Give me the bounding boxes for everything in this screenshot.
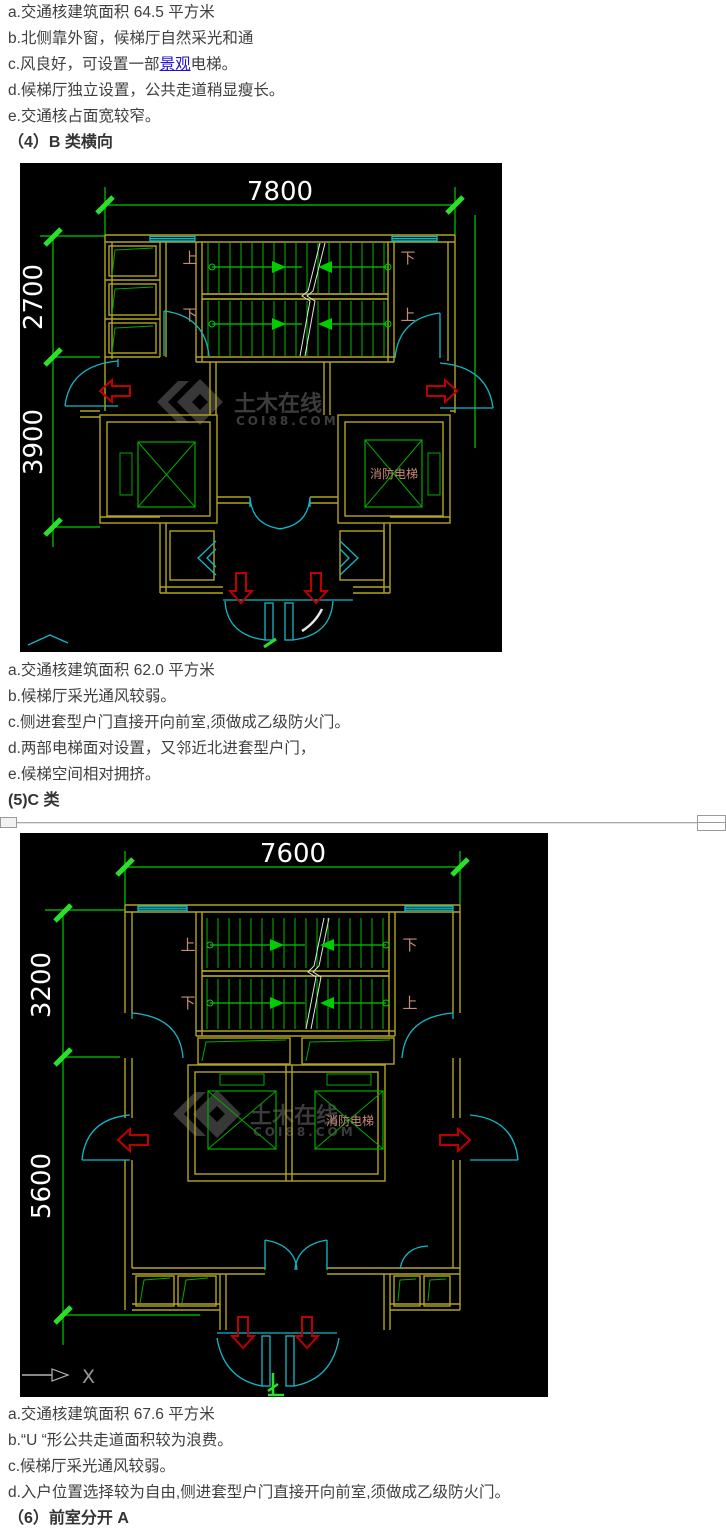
stair-label-down-right: 下 (400, 249, 415, 267)
resize-handle-right[interactable] (697, 815, 726, 831)
x-axis-indicator: X (22, 1366, 95, 1388)
stair-label-down-left: 下 (182, 306, 197, 324)
watermark-site-text: COI88.COM (236, 414, 339, 428)
document-page: a.交通核建筑面积 64.5 平方米 b.北侧靠外窗，候梯厅自然采光和通 c.风… (0, 0, 726, 1540)
dim-lower-label: 3900 (20, 409, 49, 475)
paragraph-d: d.两部电梯面对设置，又邻近北进套型户门， (8, 740, 708, 757)
paragraph-c-text: c.风良好，可设置一部 (8, 56, 160, 73)
duct-flaps (112, 248, 153, 353)
jingguan-link[interactable]: 景观 (160, 56, 191, 73)
paragraph-b: b.候梯厅采光通风较弱。 (8, 688, 708, 705)
paragraph-d: d.候梯厅独立设置，公共走道稍显瘦长。 (8, 82, 708, 99)
cad-figure-c-type[interactable]: 土木在线 COI88.COM 7600 3200 5600 (20, 833, 548, 1397)
paragraph-a: a.交通核建筑面积 67.6 平方米 (8, 1406, 708, 1423)
dim-lower-label: 5600 (27, 1153, 57, 1219)
dim-upper-label: 2700 (20, 264, 49, 330)
section-split-line (0, 822, 726, 823)
paragraph-d: d.入户位置选择较为自由,侧进套型户门直接开向前室,须做成乙级防火门。 (8, 1484, 708, 1501)
dimension-lines (45, 851, 460, 1345)
paragraph-block-1: a.交通核建筑面积 64.5 平方米 b.北侧靠外窗，候梯厅自然采光和通 c.风… (8, 4, 708, 160)
paragraph-b: b.“U “形公共走道面积较为浪费。 (8, 1432, 708, 1449)
fire-elevator-label: 消防电梯 (326, 1113, 374, 1128)
cad-drawing-b-type: 土木在线 COI88.COM 7800 2700 3900 (20, 163, 502, 652)
paragraph-a: a.交通核建筑面积 64.5 平方米 (8, 4, 708, 21)
elevator-left (120, 442, 195, 507)
paragraph-c-tail: 电梯。 (191, 56, 238, 73)
paragraph-block-2: a.交通核建筑面积 62.0 平方米 b.候梯厅采光通风较弱。 c.侧进套型户门… (8, 662, 708, 818)
watermark-logo: 土木在线 COI88.COM (157, 379, 339, 428)
cad-drawing-c-type: 土木在线 COI88.COM 7600 3200 5600 (20, 833, 548, 1397)
stair-direction-arrows (209, 261, 391, 330)
heading-b-type: （4）B 类横向 (8, 134, 708, 151)
dim-upper-label: 3200 (27, 952, 57, 1018)
walls (125, 905, 460, 1330)
watermark-remnant (302, 609, 322, 631)
stair-direction-arrows (207, 939, 389, 1009)
stair-label-up-right: 上 (402, 994, 417, 1012)
paragraph-a: a.交通核建筑面积 62.0 平方米 (8, 662, 708, 679)
fire-elevator-label: 消防电梯 (370, 466, 418, 481)
paragraph-c: c.候梯厅采光通风较弱。 (8, 1458, 708, 1475)
heading-front-room: （6）前室分开 A (8, 1510, 708, 1527)
paragraph-c: c.风良好，可设置一部景观电梯。 (8, 56, 708, 73)
resize-handle-left[interactable] (0, 817, 17, 828)
paragraph-e: e.交通核占面宽较窄。 (8, 108, 708, 125)
dim-width-label: 7600 (260, 839, 326, 869)
doors-windows (28, 235, 493, 645)
stair-label-down-right: 下 (402, 936, 417, 954)
elevator-fire: 消防电梯 (365, 440, 440, 507)
duct-flaps (140, 1040, 446, 1303)
paragraph-c: c.侧进套型户门直接开向前室,须做成乙级防火门。 (8, 714, 708, 731)
stair-label-up-left: 上 (182, 249, 197, 267)
heading-c-type: (5)C 类 (8, 792, 708, 809)
paragraph-b: b.北侧靠外窗，候梯厅自然采光和通 (8, 30, 708, 47)
x-axis-label: X (82, 1366, 95, 1388)
cad-figure-b-type[interactable]: 土木在线 COI88.COM 7800 2700 3900 (20, 163, 502, 652)
paragraph-block-3: a.交通核建筑面积 67.6 平方米 b.“U “形公共走道面积较为浪费。 c.… (8, 1406, 708, 1536)
stair-label-down-left: 下 (180, 994, 195, 1012)
stair-treads (207, 918, 383, 1029)
dim-width-label: 7800 (247, 177, 313, 207)
paragraph-e: e.候梯空间相对拥挤。 (8, 766, 708, 783)
stair-label-up-right: 上 (400, 306, 415, 324)
stair-label-up-left: 上 (180, 936, 195, 954)
